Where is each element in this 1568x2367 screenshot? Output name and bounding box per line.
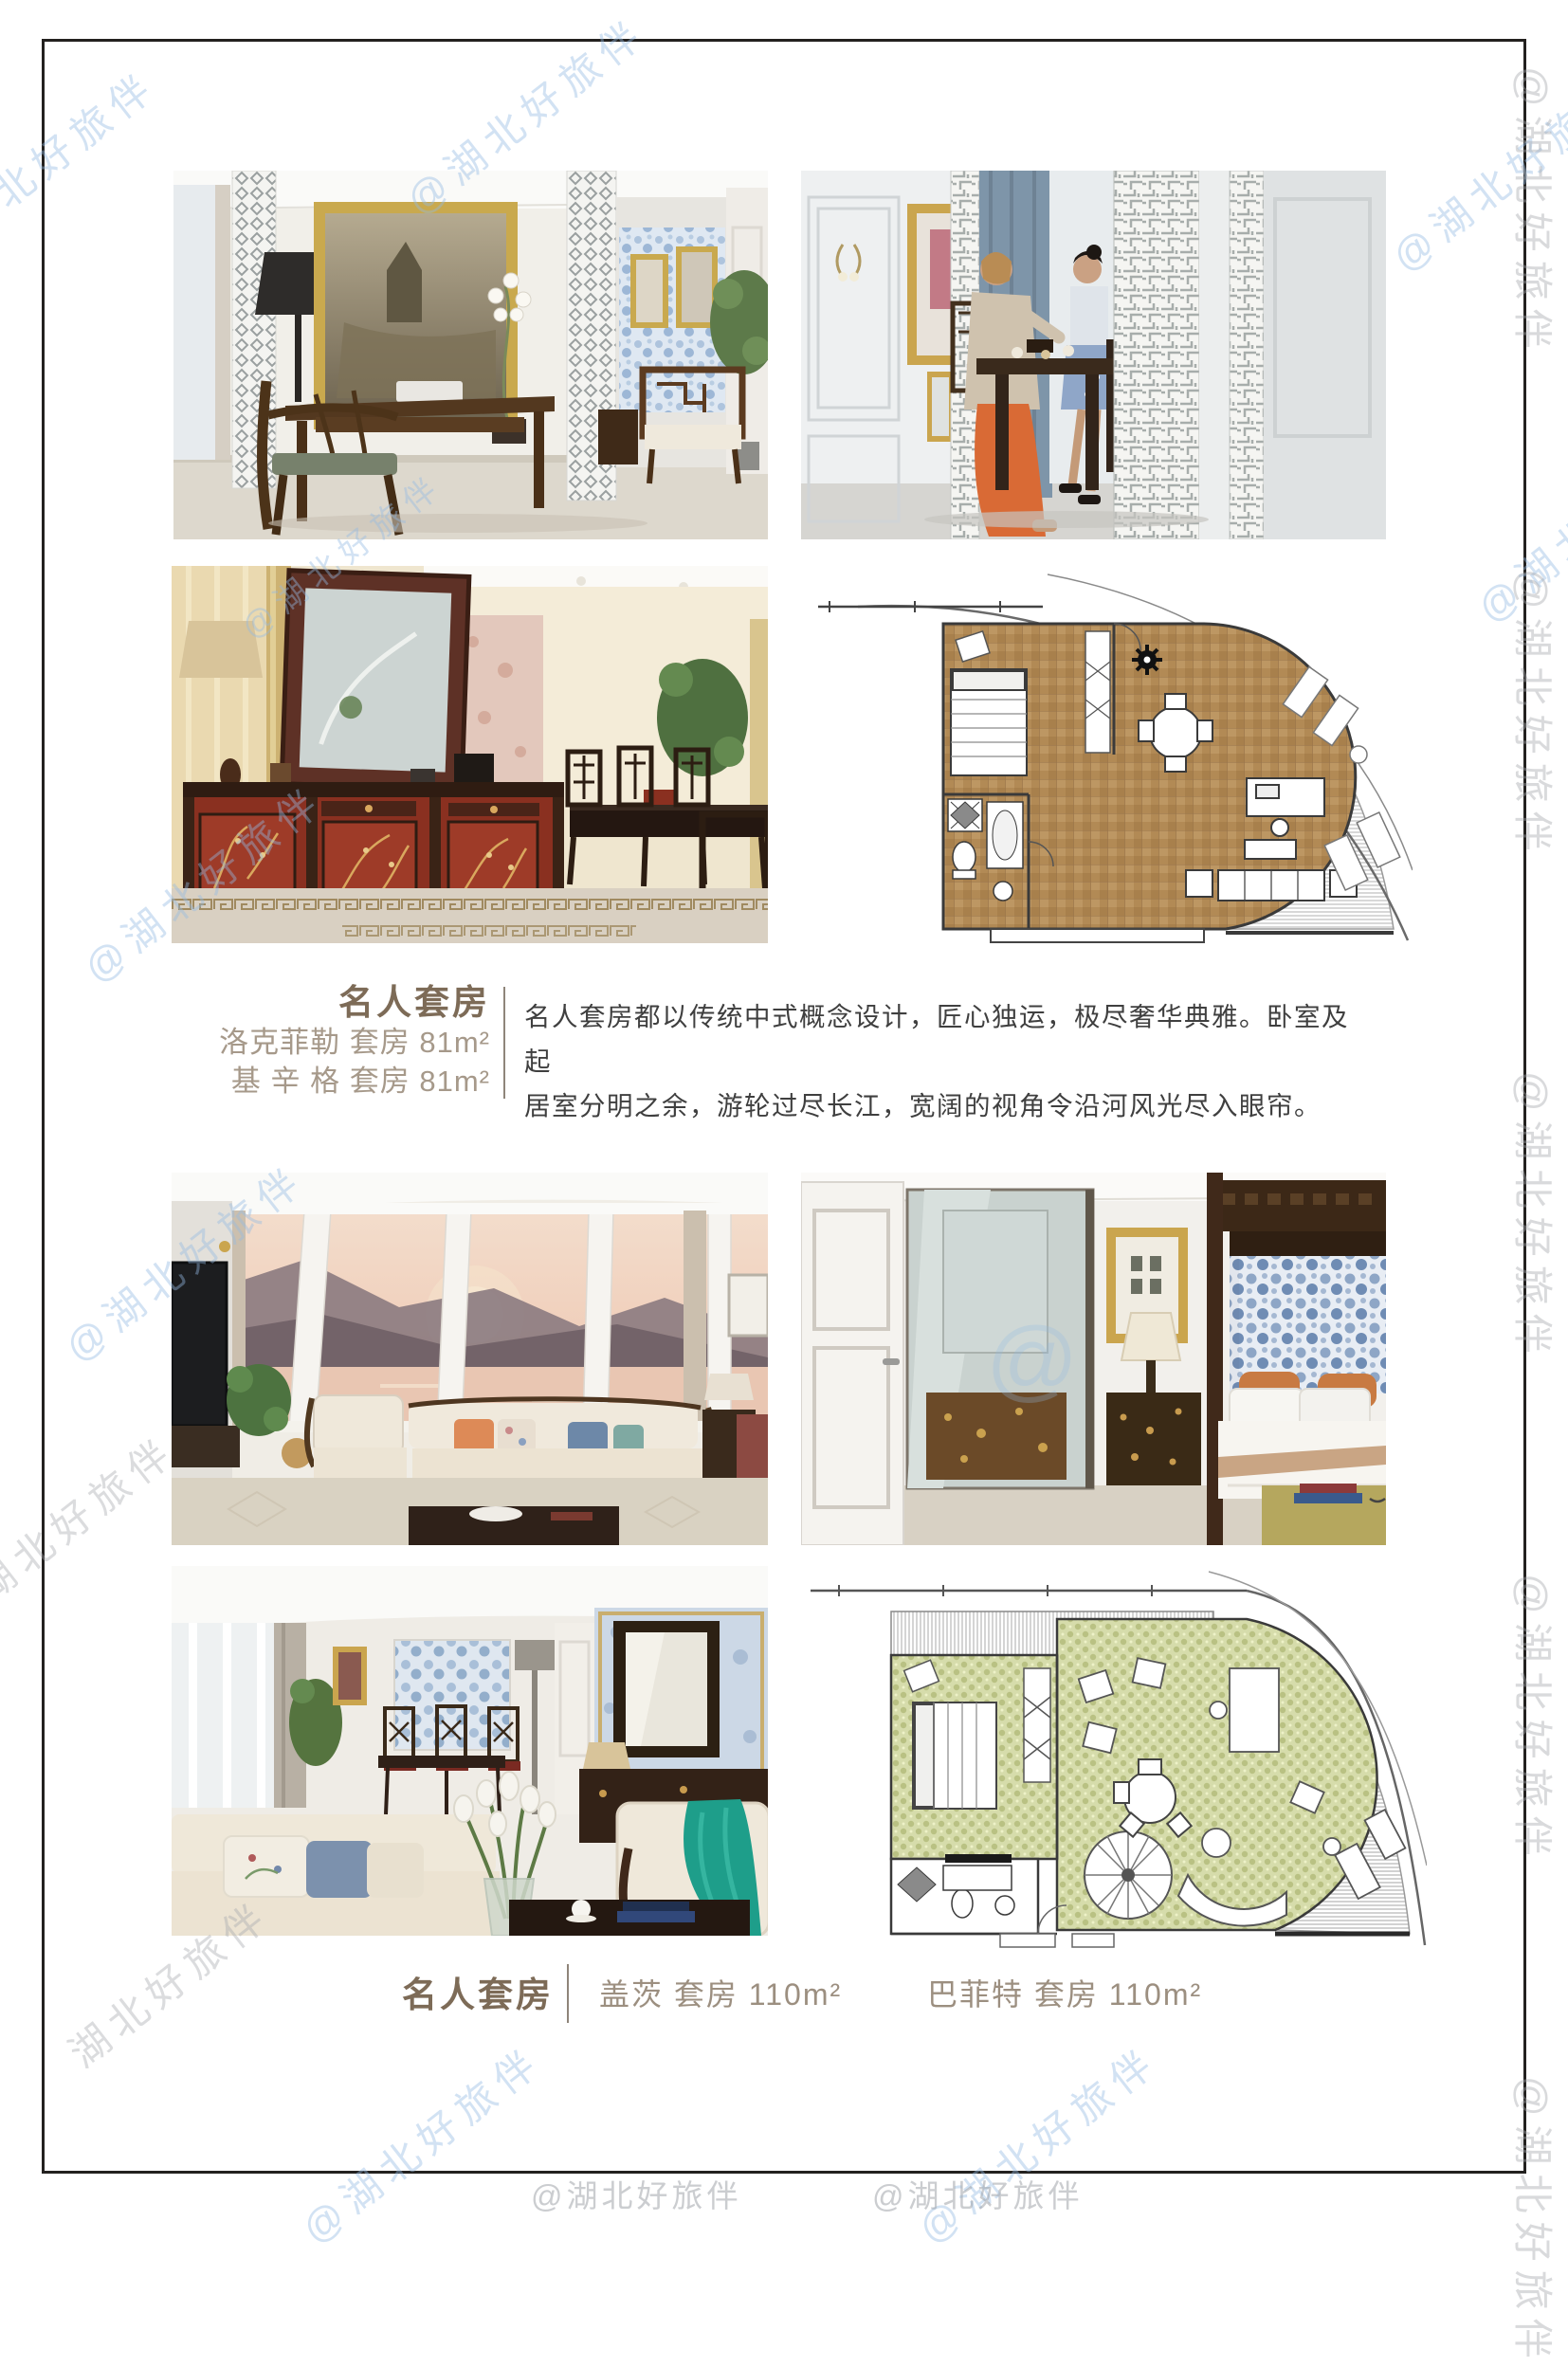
photo-study-living-room (173, 171, 768, 539)
floor-plan-celebrity-suite-81 (801, 557, 1413, 943)
suite-line: 洛克菲勒 套房 81m² (182, 1023, 490, 1062)
photo-red-lacquer-sideboard-dining (172, 566, 768, 943)
photo-canopy-bed-bedroom (801, 1173, 1386, 1545)
vertical-divider (567, 1964, 569, 2023)
brochure-page: { "watermark": { "handle": "@湖北好旅伴", "na… (0, 0, 1568, 2217)
celebrity-suite-81-heading-block: 名人套房 洛克菲勒 套房 81m² 基 辛 格 套房 81m² (182, 983, 490, 1101)
vertical-divider (503, 987, 505, 1099)
suite-line: 基 辛 格 套房 81m² (182, 1062, 490, 1101)
plan-bed (913, 1702, 996, 1809)
watermark-text: @湖北好旅伴 (872, 2171, 1084, 2216)
photo-tea-time-two-women (801, 171, 1386, 539)
plan-spiral-stair (1085, 1831, 1172, 1919)
photo-panorama-living-room (172, 1173, 768, 1545)
section-title-bottom: 名人套房 (402, 1966, 554, 2017)
section-title: 名人套房 (182, 983, 490, 1023)
suite-buffett: 巴菲特 套房 110m² (927, 1971, 1202, 2014)
watermark-text: @湖北好旅伴 (531, 2171, 742, 2216)
photo-living-room-calla-lilies (172, 1566, 768, 1936)
floor-plan-celebrity-suite-110 (801, 1562, 1427, 1948)
suite-description: 名人套房都以传统中式概念设计，匠心独运，极尽奢华典雅。卧室及起 居室分明之余，游… (524, 994, 1358, 1128)
suite-gates: 盖茨 套房 110m² (599, 1971, 842, 2014)
plan-bed (951, 669, 1027, 775)
